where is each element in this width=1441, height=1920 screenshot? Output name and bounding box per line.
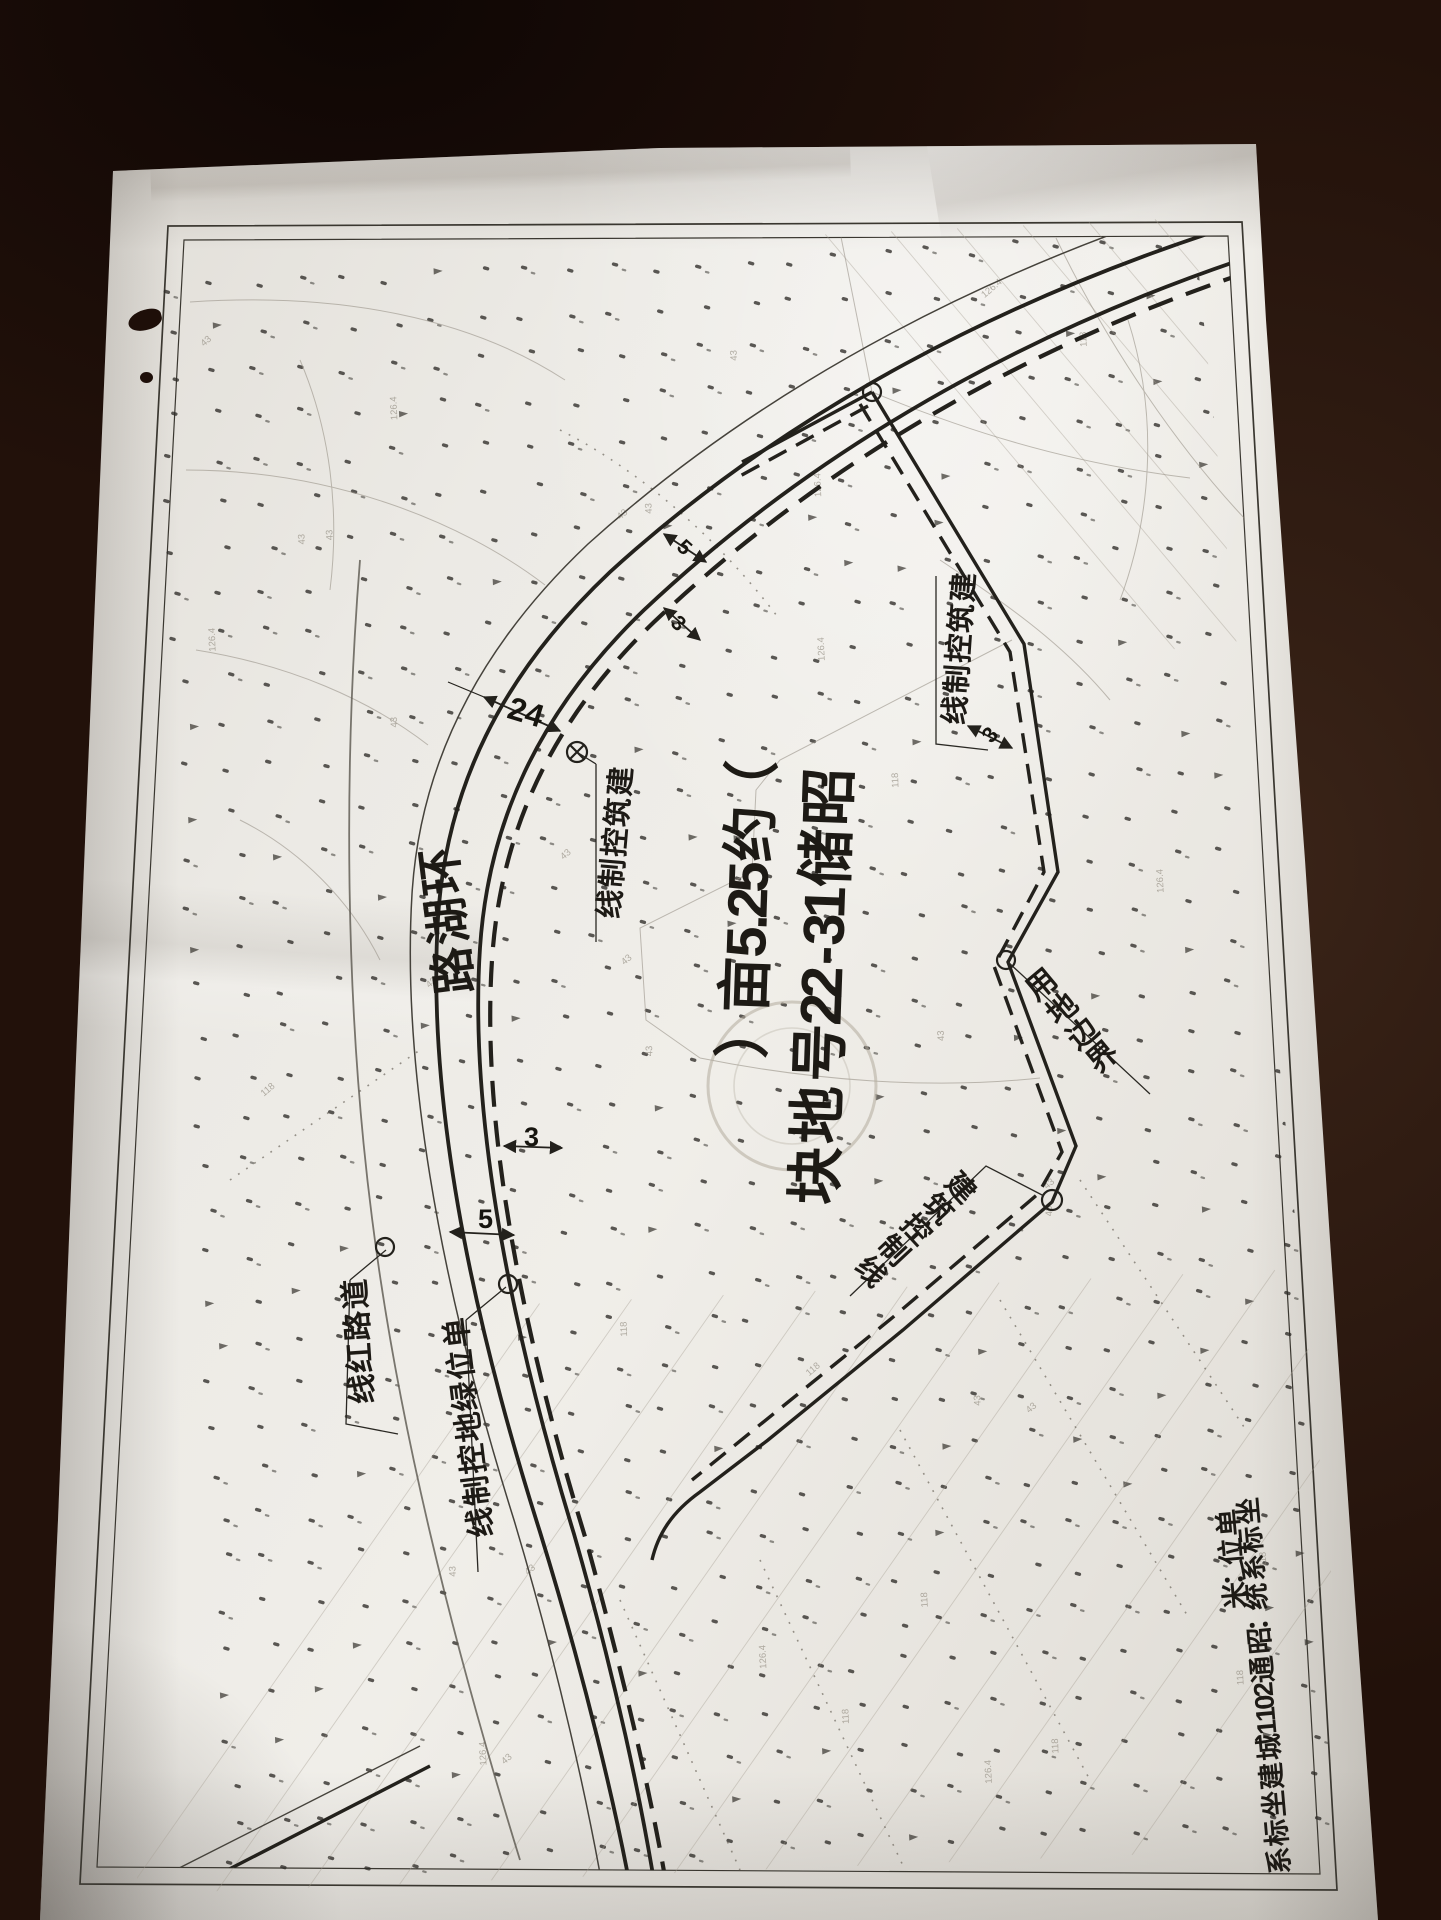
label-char: 制 [943, 664, 976, 695]
tiny-elevation-number: 126.4 [207, 628, 219, 652]
label-char: 3 [811, 912, 839, 945]
tiny-elevation-number: 118 [618, 1321, 630, 1337]
survey-point-circle [376, 1238, 394, 1256]
road-red-line-east [478, 258, 1246, 1920]
label-char: 2 [808, 992, 836, 1025]
field-dot-symbols [165, 236, 1370, 1883]
label-char: 控 [456, 1442, 491, 1476]
label-char: - [810, 946, 837, 966]
tiny-elevation-number: 126.4 [812, 473, 824, 497]
drainage-field-lines [22, 204, 1441, 1920]
tiny-elevation-number: 43 [199, 334, 214, 349]
label-char: 控 [945, 633, 978, 664]
label-char: 昭 [1245, 1626, 1276, 1655]
tiny-elevation-number: 43 [936, 1030, 947, 1041]
tiny-elevation-number: 126.4 [757, 1645, 769, 1669]
label-char: 筑 [947, 603, 980, 634]
dimension-3-lower-text: 3 [524, 1122, 539, 1153]
tiny-elevation-number: 118 [1050, 1738, 1062, 1754]
label-char: 道 [340, 1278, 374, 1310]
label-char: 线 [595, 888, 628, 920]
survey-point-cross [570, 745, 584, 759]
label-char: 块 [785, 1146, 848, 1206]
tiny-elevation-number: 126.4 [816, 637, 828, 661]
label-char: 线 [940, 695, 973, 726]
tiny-elevation-number: 126.4 [1155, 869, 1167, 893]
tiny-elevation-number: 43 [972, 1395, 983, 1406]
tiny-elevation-number: 126.4 [394, 0, 406, 8]
tiny-elevation-number: 118 [919, 1592, 931, 1608]
label-char: 单 [441, 1316, 476, 1350]
tiny-elevation-number: 43 [644, 1045, 655, 1056]
label-char: 城 [1254, 1732, 1285, 1761]
label-char: 位 [445, 1347, 480, 1381]
label-char: 建 [606, 766, 639, 798]
label-char: 建 [949, 572, 982, 603]
tiny-elevation-number: 43 [619, 952, 634, 967]
tiny-elevation-number: 43 [447, 1566, 458, 1577]
label-char: 标 [1261, 1818, 1292, 1847]
label-char: 昭 [798, 767, 861, 827]
parcel-boundary-top-edge-solid [742, 392, 872, 462]
label-char: 5 [733, 926, 760, 958]
label-char: 坐 [1259, 1789, 1290, 1818]
label-char: 储 [796, 828, 859, 888]
tiny-elevation-number: 126.4 [983, 1760, 995, 1784]
label-char: 建 [1256, 1761, 1287, 1790]
tiny-elevation-number: 43 [499, 1752, 514, 1767]
label-char: 环 [413, 845, 468, 898]
label-char: 号 [789, 1023, 852, 1083]
dimension-5-lower-text: 5 [478, 1204, 493, 1235]
label-char: 地 [452, 1410, 487, 1444]
label-char: 约 [720, 805, 781, 863]
road-southwest [120, 1746, 430, 1916]
label-char: 红 [344, 1341, 378, 1373]
label-char: 控 [600, 827, 633, 859]
label-char: 系 [1264, 1846, 1295, 1875]
label-char: 制 [460, 1474, 495, 1508]
tiny-elevation-number: 118 [1235, 1670, 1247, 1686]
building-control-line-dashed-road [490, 272, 1248, 1920]
map-paper-sheet: 4311843126.44311843126.44311843126.44311… [0, 0, 1441, 1920]
label-char: 地 [787, 1084, 850, 1144]
dimension-24-ext [448, 682, 484, 697]
tiny-elevation-number: 43 [729, 350, 740, 361]
label-char: 线 [346, 1373, 380, 1405]
label-char: 湖 [419, 894, 474, 947]
label-char: ） [727, 1001, 761, 1058]
tiny-elevation-number: 126.4 [388, 396, 400, 420]
tiny-elevation-number: 118 [840, 1709, 852, 1725]
label-char: 路 [342, 1310, 376, 1342]
tiny-elevation-number: 43 [296, 534, 307, 545]
label-char: 路 [425, 944, 480, 997]
tiny-elevation-number: 118 [890, 772, 902, 788]
photo-of-parcel-map: 4311843126.44311843126.44311843126.44311… [0, 0, 1441, 1920]
tiny-elevation-number: 43 [558, 847, 573, 862]
label-char: 绿 [449, 1379, 484, 1413]
label-char: 通 [1247, 1654, 1278, 1683]
label-char: 单 [1213, 1508, 1244, 1537]
label-char: 线 [464, 1505, 499, 1539]
tiny-elevation-number: 43 [1024, 1400, 1039, 1415]
label-char: 筑 [603, 796, 636, 828]
tiny-elevation-number: 118 [259, 1081, 278, 1099]
parcel-area-subtitle: （约52.5亩） [711, 771, 785, 1047]
label-char: 米 [1220, 1580, 1251, 1609]
tiny-elevation-number: 43 [643, 503, 654, 514]
label-char: 制 [598, 858, 631, 890]
